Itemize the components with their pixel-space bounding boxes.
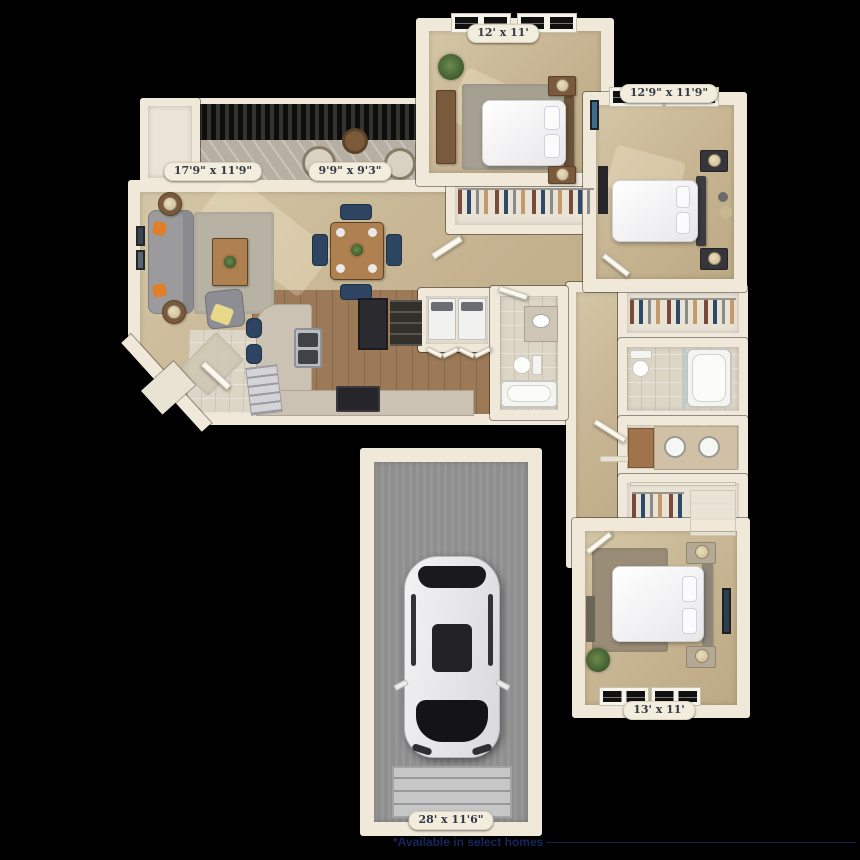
wall-art bbox=[722, 588, 731, 634]
nightstand-lamp bbox=[556, 79, 569, 92]
sink-basin bbox=[298, 350, 318, 364]
dining-chair bbox=[386, 234, 402, 266]
potted-plant bbox=[586, 648, 610, 672]
car-sunroof bbox=[432, 624, 472, 672]
bifold-door bbox=[442, 347, 459, 359]
dresser bbox=[436, 90, 456, 164]
car-side-window bbox=[411, 594, 416, 666]
hanging-clothes bbox=[630, 298, 736, 324]
dining-plate bbox=[368, 228, 377, 237]
bed-pillow bbox=[676, 212, 690, 234]
wall-decor bbox=[720, 206, 732, 218]
hanging-clothes bbox=[632, 492, 684, 518]
nightstand-lamp bbox=[708, 252, 721, 265]
vanity-sink bbox=[664, 436, 686, 458]
sink-basin bbox=[298, 333, 318, 347]
dimension-label-bedroom-right: 12'9" x 11'9" bbox=[620, 84, 718, 103]
sofa-pillow bbox=[152, 283, 167, 298]
dryer-door bbox=[461, 302, 483, 311]
bifold-door bbox=[426, 347, 443, 359]
dining-centerpiece bbox=[351, 244, 363, 256]
bifold-door bbox=[474, 347, 491, 359]
car-rear-window bbox=[418, 566, 486, 588]
car-windshield bbox=[416, 700, 488, 742]
wall-art bbox=[136, 226, 145, 246]
dining-plate bbox=[336, 264, 345, 273]
table-lamp bbox=[163, 197, 177, 211]
toilet-tank bbox=[532, 355, 542, 375]
dishwasher-open bbox=[245, 364, 283, 416]
patio-table bbox=[342, 128, 368, 154]
linen-closet-door bbox=[593, 419, 627, 443]
washer-door bbox=[431, 302, 453, 311]
table-lamp bbox=[167, 305, 181, 319]
tv-console bbox=[598, 166, 608, 214]
bed-pillow bbox=[544, 106, 560, 130]
shower-glass bbox=[682, 348, 686, 408]
floor-plan: 12' x 11' 12'9" x 11'9" 17'9" x 11'9" 9'… bbox=[0, 0, 860, 860]
bed-pillow bbox=[682, 576, 697, 602]
car-side-window bbox=[488, 594, 493, 666]
bed-pillow bbox=[544, 134, 560, 158]
refrigerator bbox=[358, 298, 388, 350]
stove bbox=[336, 386, 380, 412]
bed-pillow bbox=[676, 186, 690, 208]
bed-pillow bbox=[682, 608, 697, 634]
bar-stool bbox=[246, 318, 262, 338]
footnote-text: *Available in select homes bbox=[393, 835, 543, 849]
dimension-label-bedroom-bottom: 13' x 11' bbox=[623, 701, 695, 720]
bedroom-door bbox=[602, 253, 631, 277]
bathroom-door bbox=[498, 286, 528, 301]
dining-plate bbox=[336, 228, 345, 237]
dimension-label-garage: 28' x 11'6" bbox=[409, 811, 494, 830]
dining-plate bbox=[368, 264, 377, 273]
dining-chair bbox=[312, 234, 328, 266]
sofa-pillow bbox=[152, 221, 167, 236]
tub-basin bbox=[692, 354, 726, 402]
toilet-tank bbox=[630, 350, 652, 359]
dimension-label-living-room: 17'9" x 11'9" bbox=[164, 162, 262, 181]
wall-art bbox=[590, 100, 599, 130]
bathtub-basin bbox=[507, 385, 551, 402]
coffee-table-plant bbox=[224, 256, 236, 268]
nightstand-lamp bbox=[708, 154, 721, 167]
nightstand-lamp bbox=[556, 168, 569, 181]
furniture-layer bbox=[0, 0, 860, 860]
footnote-divider bbox=[546, 842, 856, 843]
closet-shelf bbox=[630, 482, 736, 486]
wall-art bbox=[136, 250, 145, 270]
dining-chair bbox=[340, 204, 372, 220]
dimension-label-bedroom-top: 12' x 11' bbox=[467, 24, 539, 43]
dresser bbox=[586, 596, 595, 642]
potted-plant bbox=[438, 54, 464, 80]
bar-stool bbox=[246, 344, 262, 364]
dimension-label-dining-room: 9'9" x 9'3" bbox=[308, 162, 391, 181]
closet-shelving bbox=[690, 490, 736, 536]
vanity-cabinet bbox=[628, 428, 654, 468]
vanity-sink bbox=[532, 314, 550, 328]
vanity-sink bbox=[698, 436, 720, 458]
nightstand-lamp bbox=[695, 545, 709, 559]
hanging-clothes bbox=[458, 188, 594, 214]
bifold-door bbox=[458, 347, 475, 359]
wall-decor bbox=[718, 192, 728, 202]
nightstand-lamp bbox=[695, 649, 709, 663]
bedroom-door bbox=[431, 235, 463, 259]
footnote: *Available in select homes bbox=[393, 835, 856, 849]
toilet bbox=[632, 360, 649, 377]
toilet bbox=[513, 356, 531, 374]
pantry-shelves bbox=[390, 300, 422, 346]
